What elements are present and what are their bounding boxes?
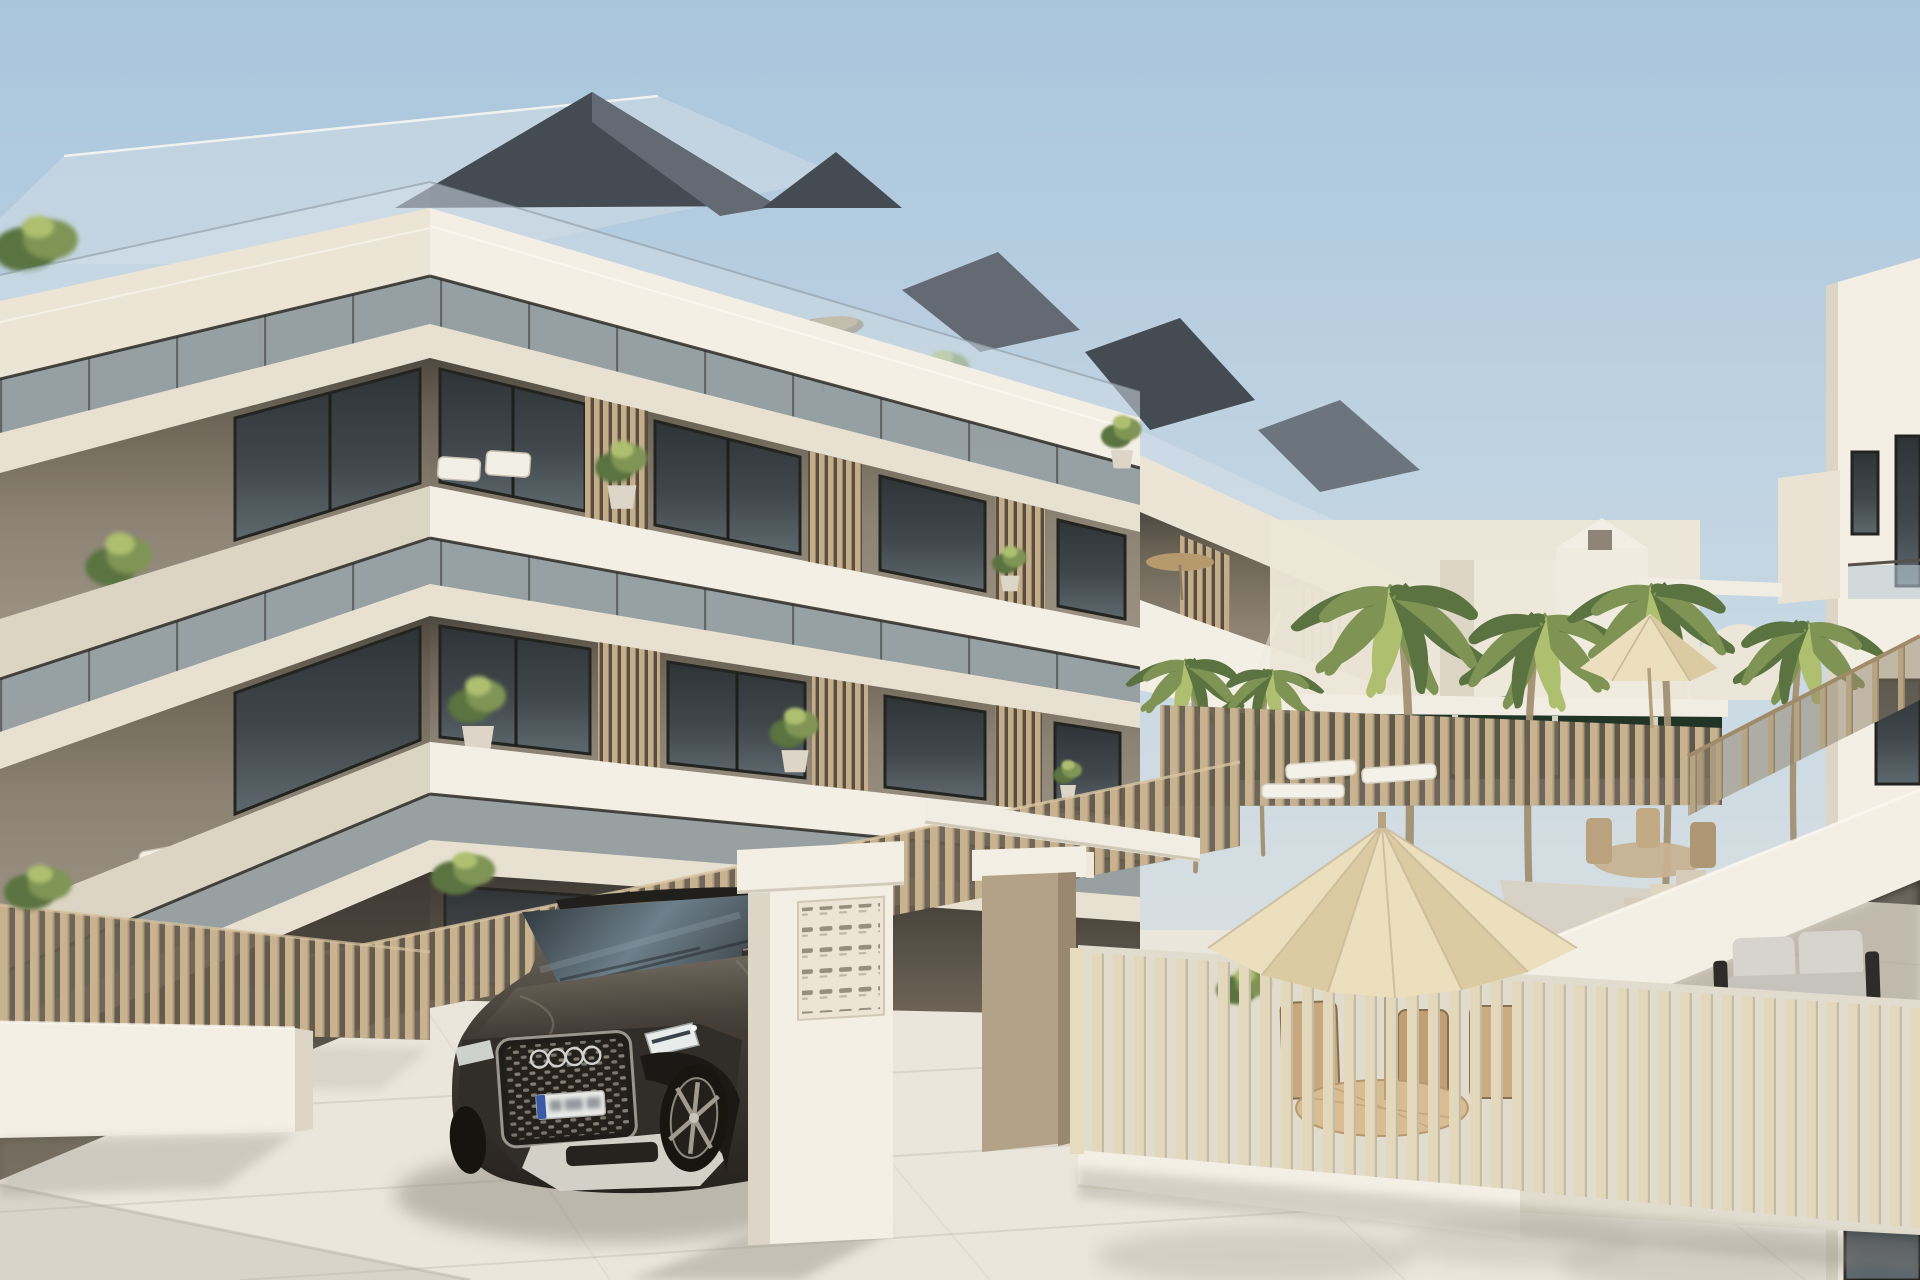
render-image: Architectural rendering of a modern thre…	[0, 0, 1920, 1280]
license-plate	[536, 1091, 606, 1120]
parapet-block	[1778, 470, 1840, 604]
house-window	[1588, 530, 1612, 550]
right-building-balustrade	[1848, 560, 1920, 599]
mailbox-panel	[798, 897, 884, 1020]
mailbox-pillar	[737, 841, 904, 1245]
architectural-render: Architectural rendering of a modern thre…	[0, 0, 1920, 1280]
privacy-screen	[808, 451, 862, 572]
front-grille	[496, 1031, 637, 1148]
gate-pillar	[972, 846, 1086, 1152]
privacy-screen	[598, 642, 660, 768]
privacy-screen	[812, 676, 868, 791]
window	[1852, 452, 1878, 534]
privacy-screen	[995, 705, 1042, 811]
window	[1896, 436, 1920, 586]
fence-end-post	[1070, 948, 1084, 1154]
